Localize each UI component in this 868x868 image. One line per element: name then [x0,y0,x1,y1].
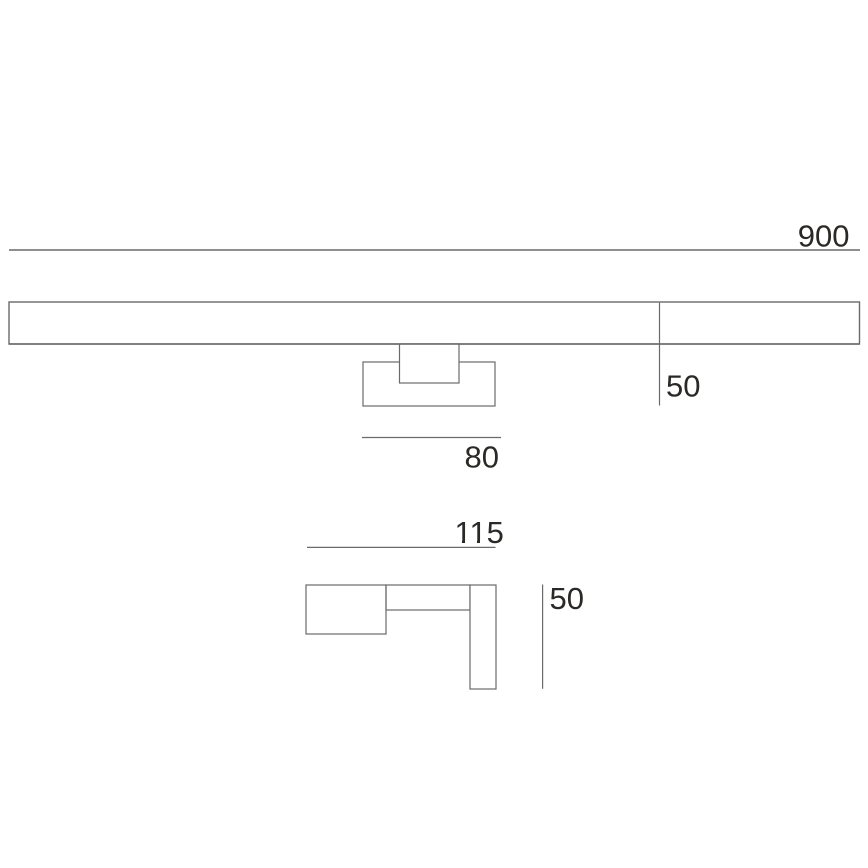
svg-text:900: 900 [798,218,850,253]
svg-text:50: 50 [550,581,584,616]
svg-text:50: 50 [666,368,700,403]
svg-text:80: 80 [465,440,499,475]
svg-text:115: 115 [455,515,504,550]
